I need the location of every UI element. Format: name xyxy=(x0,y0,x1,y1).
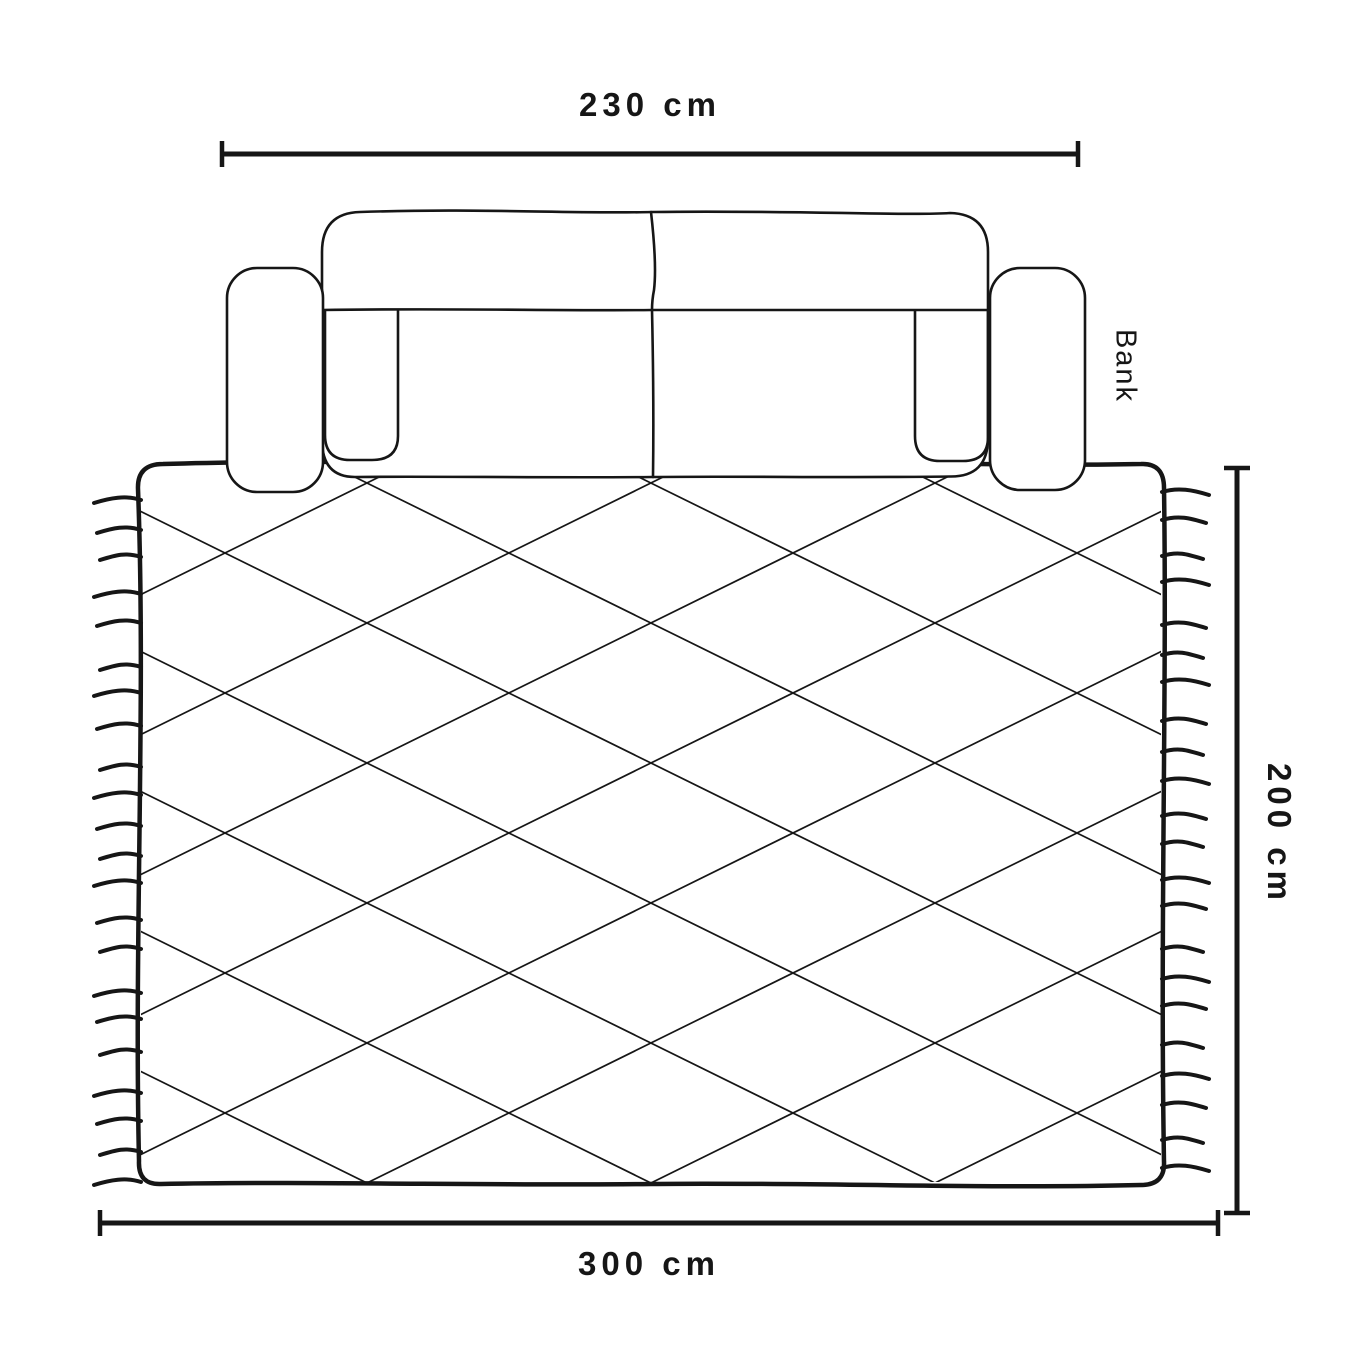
fringe-tassel xyxy=(94,792,141,798)
fringe-tassel xyxy=(97,1016,141,1022)
fringe-tassel xyxy=(97,527,141,533)
fringe-tassel xyxy=(1162,652,1203,658)
dimension-label-rug-depth: 200 cm xyxy=(1261,763,1298,905)
fringe-tassel xyxy=(1162,749,1203,755)
fringe-tassel xyxy=(100,946,141,952)
fringe-tassel xyxy=(94,497,141,503)
dimension-rug-depth: 200 cm xyxy=(1224,468,1298,1213)
fringe-tassel xyxy=(100,1149,141,1155)
sofa-seat-divider xyxy=(652,310,653,477)
rug-fringe-right xyxy=(1162,489,1209,1171)
fringe-tassel xyxy=(100,853,141,859)
fringe-tassel xyxy=(1162,1165,1209,1171)
fringe-tassel xyxy=(1162,877,1209,883)
rug xyxy=(94,0,1210,1368)
fringe-tassel xyxy=(97,723,141,729)
fringe-tassel xyxy=(100,1049,141,1055)
fringe-tassel xyxy=(1162,489,1209,495)
fringe-tassel xyxy=(94,690,141,696)
fringe-tassel xyxy=(1162,1102,1206,1108)
fringe-tassel xyxy=(1162,813,1206,819)
rug-outline xyxy=(138,461,1165,1186)
fringe-tassel xyxy=(1162,553,1203,559)
fringe-tassel xyxy=(1162,841,1203,847)
fringe-tassel xyxy=(1162,976,1209,982)
fringe-tassel xyxy=(1162,1137,1203,1143)
sofa-armrest-right xyxy=(990,268,1085,490)
fringe-tassel xyxy=(1162,903,1206,909)
sofa xyxy=(227,211,1085,492)
fringe-tassel xyxy=(1162,679,1209,685)
fringe-tassel xyxy=(1162,517,1206,523)
fringe-tassel xyxy=(100,664,141,670)
fringe-tassel xyxy=(97,620,141,626)
fringe-tassel xyxy=(94,1179,141,1185)
dimension-label-sofa-width: 230 cm xyxy=(579,86,721,123)
fringe-tassel xyxy=(1162,579,1209,585)
dimension-label-rug-width: 300 cm xyxy=(578,1245,720,1282)
sofa-seat-line xyxy=(322,309,988,310)
fringe-tassel xyxy=(94,990,141,996)
fringe-tassel xyxy=(1162,622,1206,628)
fringe-tassel xyxy=(97,917,141,923)
sofa-armrest-left xyxy=(227,268,323,492)
fringe-tassel xyxy=(1162,1003,1206,1009)
fringe-tassel xyxy=(100,764,141,770)
fringe-tassel xyxy=(1162,718,1206,724)
rug-fringe-left xyxy=(94,497,141,1185)
dimension-sofa-width: 230 cm xyxy=(222,86,1078,167)
fringe-tassel xyxy=(94,591,141,597)
fringe-tassel xyxy=(1162,1042,1203,1048)
fringe-tassel xyxy=(1162,1073,1209,1079)
sofa-label: Bank xyxy=(1109,329,1141,403)
fringe-tassel xyxy=(97,1118,141,1124)
fringe-tassel xyxy=(94,1090,141,1096)
fringe-tassel xyxy=(100,554,141,560)
fringe-tassel xyxy=(1162,946,1203,952)
rug-size-diagram: 230 cm 300 cm 200 cm Bank xyxy=(0,0,1368,1368)
fringe-tassel xyxy=(1162,778,1209,784)
dimension-rug-width: 300 cm xyxy=(100,1210,1218,1282)
fringe-tassel xyxy=(97,823,141,829)
fringe-tassel xyxy=(94,880,141,886)
